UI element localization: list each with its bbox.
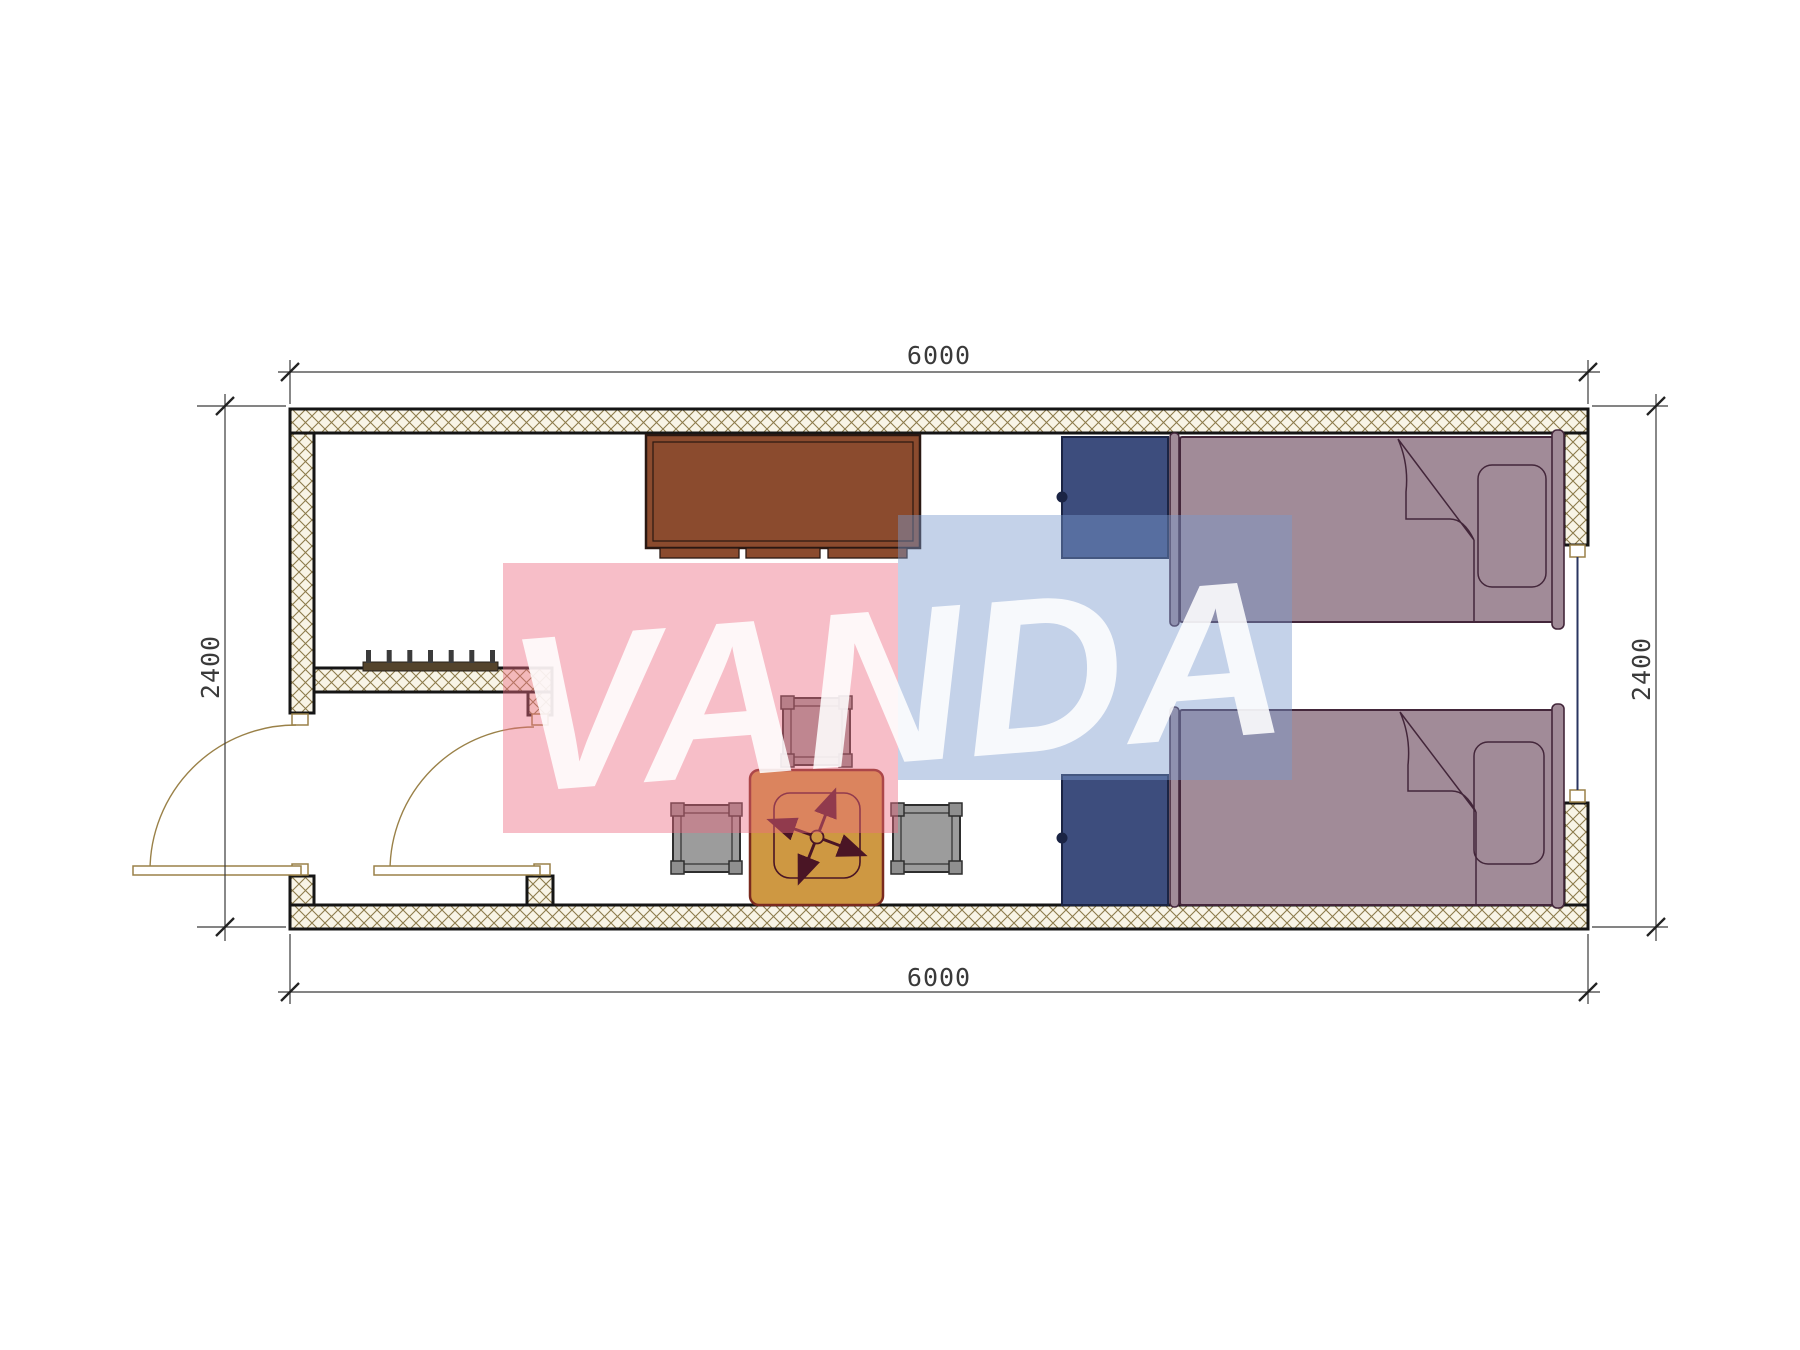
right-wall-lower-segment <box>1564 803 1588 905</box>
cabinet-drawer-1 <box>660 548 739 558</box>
cabinet-drawer-3 <box>828 548 907 558</box>
cabinet-drawer-2 <box>746 548 820 558</box>
bed-lower-headboard <box>1552 704 1564 908</box>
bottom-exterior-wall <box>290 905 1588 929</box>
door-post-right <box>527 876 553 905</box>
door-jamb-1 <box>292 714 308 725</box>
window-jamb-bottom <box>1570 790 1585 802</box>
cabinet-body <box>646 435 920 548</box>
coat-rack-bar <box>363 662 498 671</box>
stool-right <box>891 803 962 874</box>
right-wall-upper-segment <box>1564 433 1588 545</box>
wardrobe-upper-knob <box>1057 492 1068 503</box>
bed-upper-headboard <box>1552 430 1564 629</box>
storage-cabinet <box>646 435 920 558</box>
window-jamb-top <box>1570 545 1585 557</box>
bed-lower-pillow <box>1474 742 1544 864</box>
door-post-left <box>290 876 314 905</box>
dim-label-bottom: 6000 <box>907 963 971 992</box>
floor-plan-page: VANDA 6000 6000 2400 2400 <box>0 0 1800 1350</box>
exterior-door-leaf <box>133 866 301 875</box>
dim-label-top: 6000 <box>907 341 971 370</box>
floor-plan-drawing: VANDA 6000 6000 2400 2400 <box>0 0 1800 1350</box>
bed-upper-pillow <box>1478 465 1546 587</box>
interior-door-leaf <box>374 866 540 875</box>
wardrobe-lower-knob <box>1057 833 1068 844</box>
top-exterior-wall <box>290 409 1588 433</box>
dim-label-right: 2400 <box>1627 637 1656 701</box>
dim-label-left: 2400 <box>196 635 225 699</box>
left-exterior-wall <box>290 433 314 713</box>
